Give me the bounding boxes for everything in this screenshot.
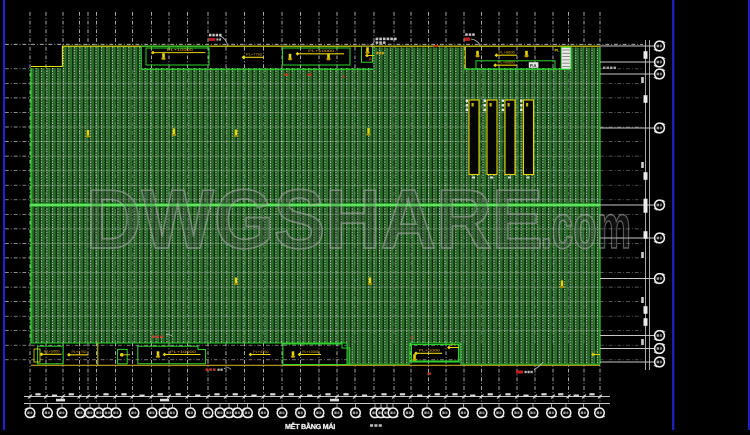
svg-text:PL+4750: PL+4750 (72, 350, 87, 354)
svg-text:PL+4750: PL+4750 (253, 350, 269, 354)
svg-text:PL: PL (555, 49, 561, 53)
svg-text:DWGSHARE: DWGSHARE (86, 172, 543, 266)
svg-text:PL: PL (451, 343, 458, 347)
svg-text:PL+10000: PL+10000 (170, 350, 196, 354)
svg-text:P.A: P.A (530, 63, 536, 68)
svg-text:PL+10000: PL+10000 (167, 48, 193, 52)
svg-text:PL+10000: PL+10000 (302, 350, 319, 354)
svg-text:PL+8000: PL+8000 (498, 61, 515, 65)
svg-text:1%: 1% (410, 336, 416, 340)
svg-text:PL+7750: PL+7750 (246, 53, 262, 57)
svg-text:PL+5000: PL+5000 (419, 349, 441, 353)
svg-text:PL: PL (596, 350, 599, 354)
svg-text:PL+5000: PL+5000 (44, 350, 60, 354)
svg-text:PL+10000: PL+10000 (308, 49, 334, 53)
svg-text:.com: .com (541, 193, 631, 262)
svg-text:MỄT BẰNG MÁI: MỄT BẰNG MÁI (285, 422, 335, 430)
svg-text:PL+9000: PL+9000 (499, 51, 515, 55)
